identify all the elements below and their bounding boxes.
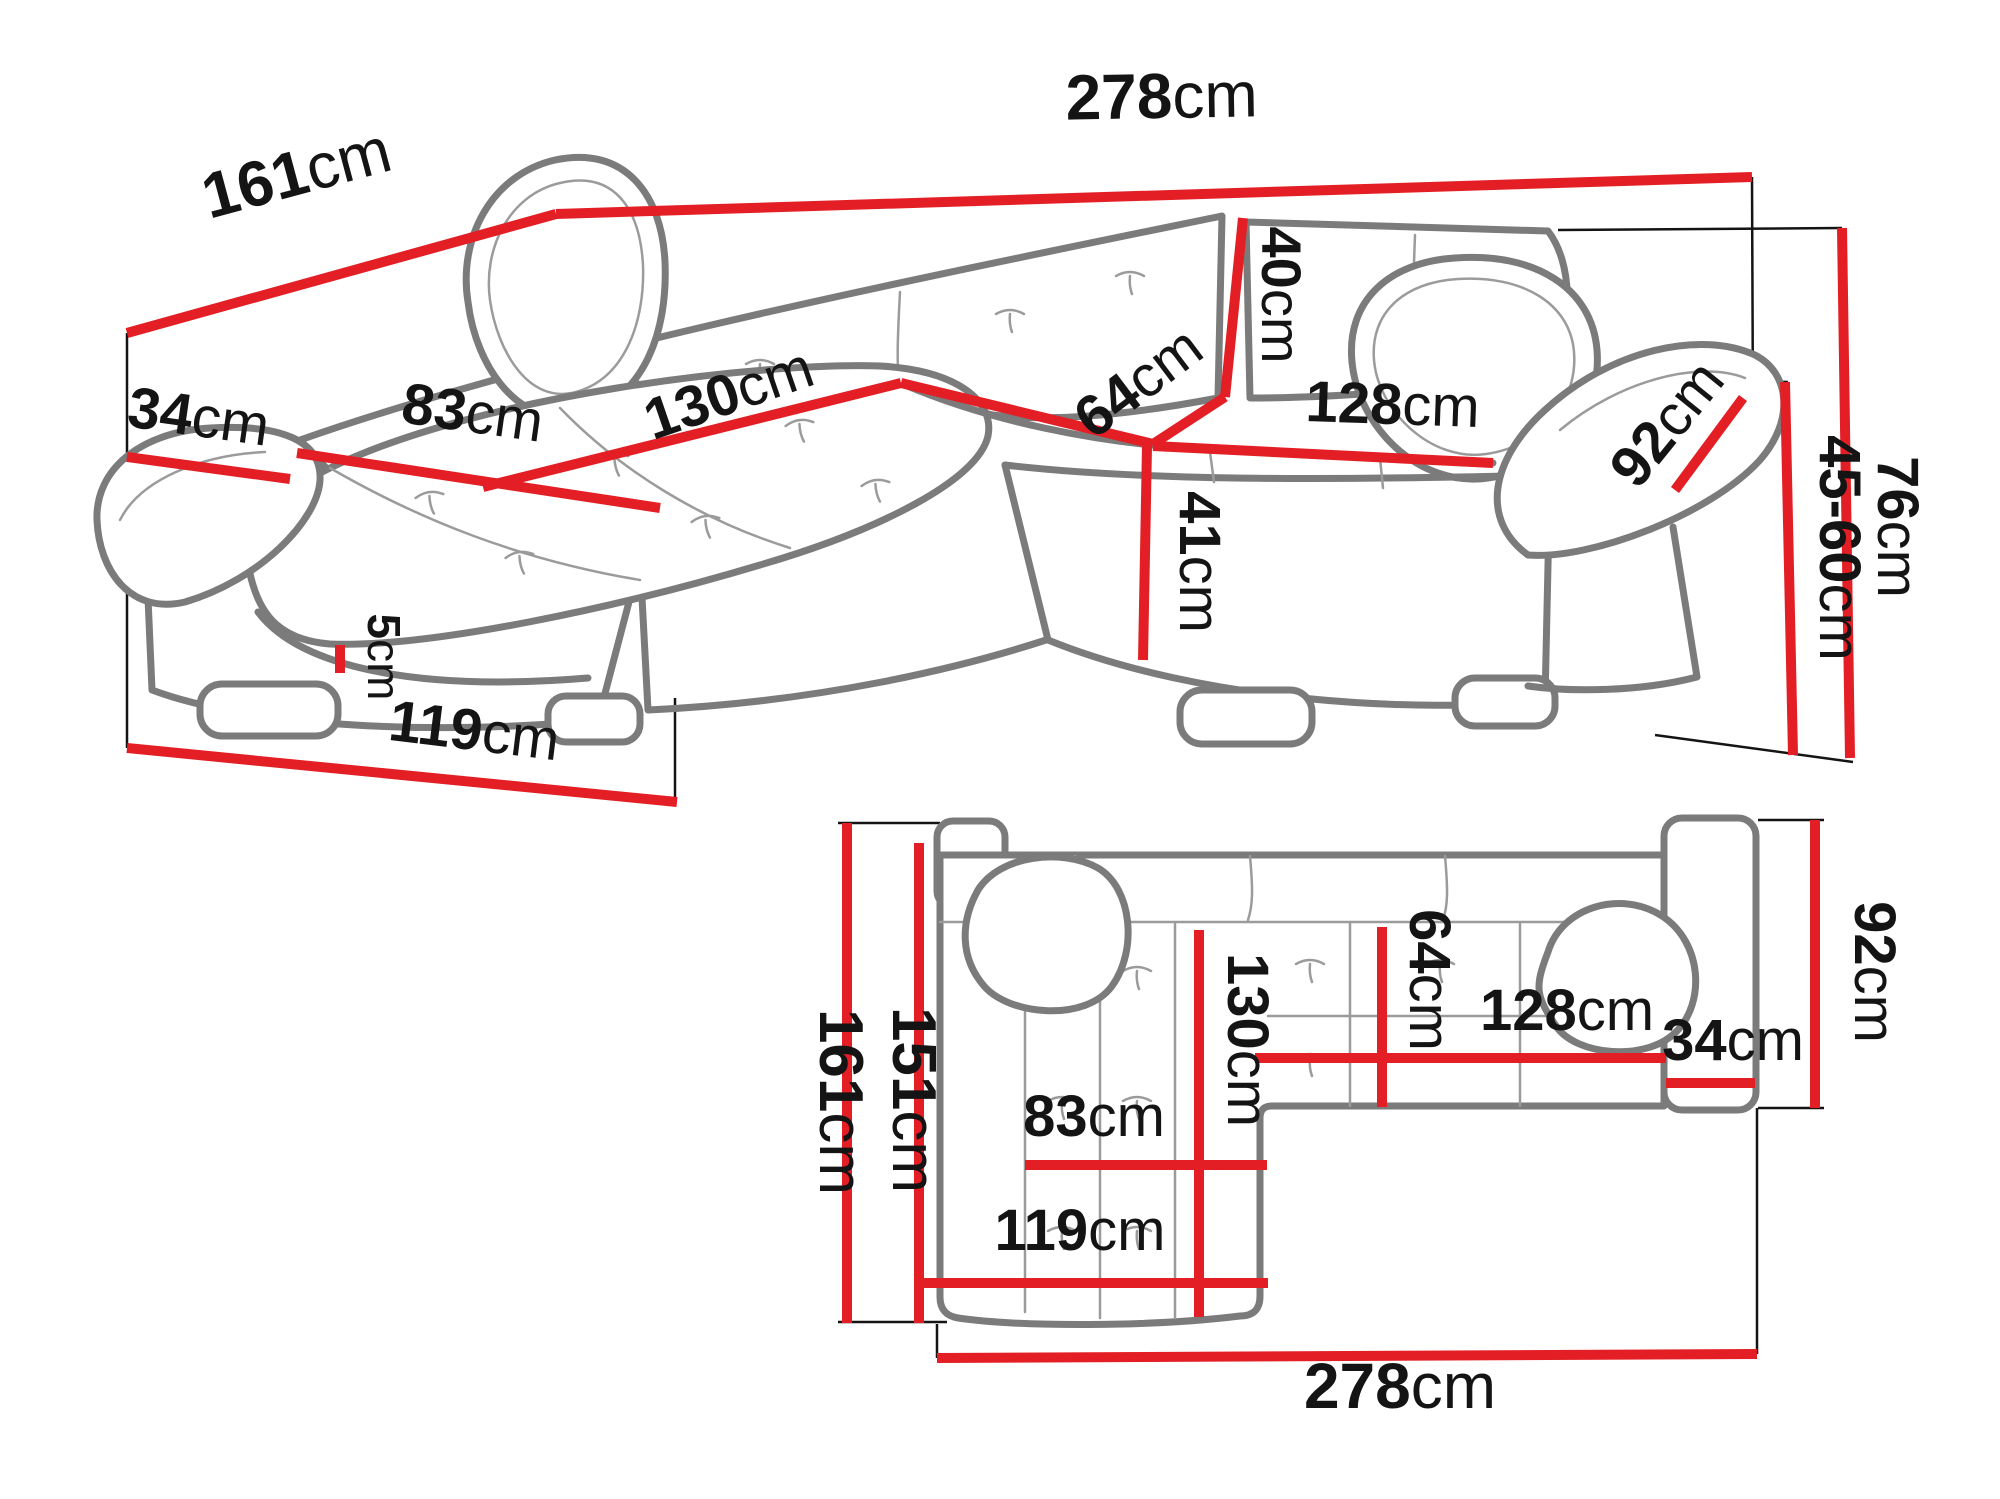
dim-line-41-seat-height — [1143, 446, 1147, 660]
dim-label-plan-34: 34cm — [1662, 1008, 1804, 1073]
dim-label-plan-151: 151cm — [879, 1007, 948, 1193]
dim-label-40: 40cm — [1250, 227, 1313, 364]
dim-label-45-60: 45-60cm — [1807, 435, 1872, 661]
seat-division-2 — [1380, 458, 1383, 488]
dim-line-119-chaise-front — [127, 748, 677, 802]
extension-floor — [1655, 735, 1853, 762]
plan-view: 161cm 151cm 130cm 83cm 119cm 278cm 64cm … — [806, 818, 1907, 1422]
front-left-leg — [200, 684, 338, 736]
front-right-leg — [1180, 690, 1312, 744]
dim-label-plan-64: 64cm — [1397, 909, 1462, 1051]
dim-line-40-backrest-height — [1225, 218, 1243, 397]
dim-label-plan-278: 278cm — [1304, 1350, 1496, 1422]
dim-label-plan-83: 83cm — [1023, 1084, 1165, 1149]
perspective-view: 161cm 278cm 34cm 83cm 130cm 64cm 40cm 12… — [97, 58, 1930, 802]
dim-label-128: 128cm — [1305, 369, 1481, 440]
diagram-canvas: 161cm 278cm 34cm 83cm 130cm 64cm 40cm 12… — [0, 0, 2000, 1499]
dim-label-plan-130: 130cm — [1215, 953, 1280, 1127]
dim-label-76: 76cm — [1865, 456, 1930, 598]
dim-line-45-60-seat-height — [1785, 382, 1793, 755]
dim-label-41: 41cm — [1167, 491, 1232, 633]
dim-label-plan-92: 92cm — [1842, 901, 1907, 1043]
extension-height-top — [1558, 228, 1842, 230]
seat-front-face — [1005, 465, 1550, 705]
dim-label-plan-161: 161cm — [806, 1009, 875, 1195]
dim-line-278-width — [556, 177, 1752, 214]
dim-label-161: 161cm — [194, 113, 398, 232]
plan-pillow-left — [965, 857, 1128, 1011]
sofa-dimension-diagram: 161cm 278cm 34cm 83cm 130cm 64cm 40cm 12… — [0, 0, 2000, 1499]
sofa-perspective-sketch — [97, 157, 1784, 744]
dim-label-5: 5cm — [358, 614, 410, 701]
pillow-left — [466, 157, 665, 417]
dim-label-278: 278cm — [1065, 58, 1258, 133]
dim-label-plan-128: 128cm — [1480, 978, 1654, 1043]
dim-label-plan-119: 119cm — [995, 1198, 1166, 1263]
